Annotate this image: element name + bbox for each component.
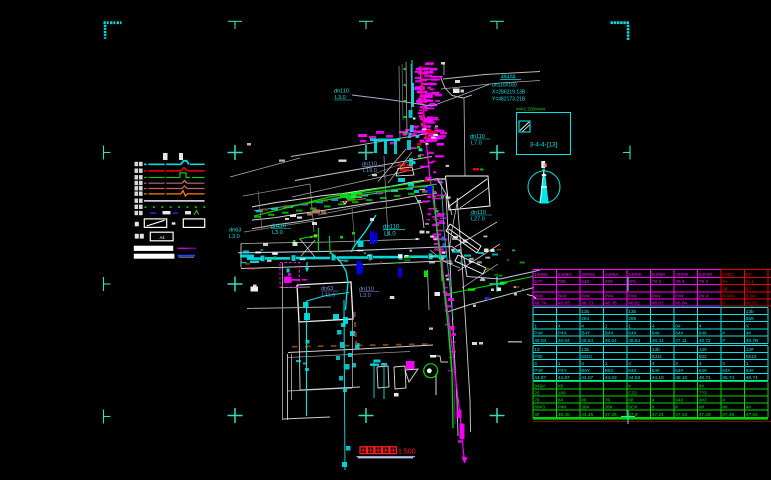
svg-text:949#: 949# xyxy=(534,384,545,390)
svg-text:4: 4 xyxy=(534,361,537,367)
svg-text:4#: 4# xyxy=(746,331,752,337)
svg-text:48: 48 xyxy=(581,398,587,404)
svg-text:4: 4 xyxy=(699,361,702,367)
svg-text:###1:200####: ###1:200#### xyxy=(516,107,546,112)
svg-text:7?3: 7?3 xyxy=(699,391,707,397)
svg-text:4: 4 xyxy=(628,361,631,367)
svg-text:3-4-4-[13]: 3-4-4-[13] xyxy=(530,142,558,149)
svg-text:E#: E# xyxy=(746,272,752,278)
svg-text:4#: 4# xyxy=(534,412,540,418)
svg-text:4: 4 xyxy=(652,361,655,367)
svg-text:64X: 64X xyxy=(628,331,637,337)
svg-text:L4.0: L4.0 xyxy=(384,232,396,238)
svg-text:479: 479 xyxy=(605,279,613,285)
svg-text:13b: 13b xyxy=(628,309,636,315)
svg-text:13#: 13# xyxy=(746,347,754,353)
svg-text:8-9#: 8-9# xyxy=(746,294,756,300)
svg-text:54#8#: 54#8# xyxy=(628,272,642,278)
svg-text:B4Y: B4Y xyxy=(581,331,591,337)
svg-text:47.25: 47.25 xyxy=(605,412,617,418)
svg-text:13: 13 xyxy=(534,347,540,353)
svg-text:44.87: 44.87 xyxy=(558,375,570,381)
svg-text:542: 542 xyxy=(581,279,589,285)
svg-text:64#: 64# xyxy=(652,331,660,337)
svg-text:6#: 6# xyxy=(675,324,681,330)
svg-text:47.11: 47.11 xyxy=(675,338,687,344)
svg-text:48.72: 48.72 xyxy=(699,338,711,344)
svg-text:4#1: 4#1 xyxy=(628,279,636,285)
svg-text:P#4: P#4 xyxy=(605,294,614,300)
svg-text:832: 832 xyxy=(699,354,707,360)
svg-text:1: 1 xyxy=(558,361,561,367)
svg-text:4#: 4# xyxy=(746,405,752,411)
svg-text:P4Y: P4Y xyxy=(558,368,568,374)
svg-text:47.63: 47.63 xyxy=(746,412,758,418)
svg-text:25: 25 xyxy=(534,391,540,397)
svg-text:L19.0: L19.0 xyxy=(363,168,377,174)
svg-text:48.41: 48.41 xyxy=(652,338,664,344)
svg-text:84X: 84X xyxy=(628,368,637,374)
svg-text:48.81: 48.81 xyxy=(628,301,640,307)
svg-text:48.04: 48.04 xyxy=(534,338,546,344)
svg-text:4#: 4# xyxy=(722,405,728,411)
svg-text:5310: 5310 xyxy=(581,354,592,360)
svg-text:48.45: 48.45 xyxy=(558,412,570,418)
svg-text:47.45: 47.45 xyxy=(722,412,734,418)
svg-text:##: ## xyxy=(699,405,705,411)
svg-text:4: 4 xyxy=(652,398,655,404)
svg-text:44.45: 44.45 xyxy=(581,412,593,418)
svg-text:64#: 64# xyxy=(652,368,660,374)
svg-text:#: # xyxy=(722,338,725,344)
svg-text:P4#: P4# xyxy=(558,405,567,411)
svg-text:47.34: 47.34 xyxy=(675,412,687,418)
svg-text:44.63: 44.63 xyxy=(605,375,617,381)
svg-text:C22: C22 xyxy=(628,391,637,397)
svg-text:44.10: 44.10 xyxy=(652,375,664,381)
svg-text:47.29: 47.29 xyxy=(699,412,711,418)
svg-text:44.63: 44.63 xyxy=(628,375,640,381)
svg-text:dn110: dn110 xyxy=(334,89,349,95)
svg-text:B#4: B#4 xyxy=(534,294,543,300)
svg-text:P# 4: P# 4 xyxy=(699,294,709,300)
svg-text:48.10: 48.10 xyxy=(675,375,687,381)
svg-text:4: 4 xyxy=(722,398,725,404)
svg-text:Y=482173.21B: Y=482173.21B xyxy=(492,97,526,103)
svg-text:L3.0: L3.0 xyxy=(272,230,283,236)
svg-text:B6X: B6X xyxy=(605,368,615,374)
svg-text:P#4: P#4 xyxy=(675,294,684,300)
svg-text:48.82: 48.82 xyxy=(652,301,664,307)
svg-text:36#: 36# xyxy=(605,405,613,411)
svg-text:940: 940 xyxy=(675,398,683,404)
svg-text:4: 4 xyxy=(581,324,584,330)
svg-text:48.7B: 48.7B xyxy=(746,338,759,344)
svg-text:577: 577 xyxy=(534,279,542,285)
svg-text:84: 84 xyxy=(558,398,564,404)
svg-text:48.84: 48.84 xyxy=(581,338,593,344)
svg-text:48.71: 48.71 xyxy=(699,375,711,381)
svg-text:4: 4 xyxy=(581,361,584,367)
svg-text:48.74: 48.74 xyxy=(746,375,758,381)
svg-text:1:500: 1:500 xyxy=(398,449,416,456)
svg-text:13#: 13# xyxy=(699,347,707,353)
svg-text:L3.0: L3.0 xyxy=(360,293,371,299)
svg-text:5513: 5513 xyxy=(746,354,757,360)
svg-text:L27.0: L27.0 xyxy=(471,217,485,223)
svg-text:6C#: 6C# xyxy=(628,405,637,411)
svg-text:dn63: dn63 xyxy=(229,228,241,234)
svg-text:44.87: 44.87 xyxy=(534,375,546,381)
svg-text:78 4: 78 4 xyxy=(675,279,685,285)
svg-text:1: 1 xyxy=(628,324,631,330)
svg-text:L3.0: L3.0 xyxy=(229,234,240,240)
svg-text:4: 4 xyxy=(675,361,678,367)
svg-text:64#: 64# xyxy=(675,331,683,337)
svg-text:4: 4 xyxy=(699,324,702,330)
svg-text:78 3: 78 3 xyxy=(652,279,662,285)
svg-text:4: 4 xyxy=(558,324,561,330)
svg-text:A4: A4 xyxy=(160,235,166,240)
svg-text:785: 785 xyxy=(558,279,566,285)
svg-text:48.84: 48.84 xyxy=(675,301,687,307)
svg-text:1: 1 xyxy=(534,324,537,330)
svg-text:X=286219.13B: X=286219.13B xyxy=(492,90,526,96)
svg-text:#: # xyxy=(722,331,725,337)
svg-text:4-8#A: 4-8#A xyxy=(722,294,736,300)
svg-text:48.64: 48.64 xyxy=(628,338,640,344)
svg-text:4: 4 xyxy=(722,361,725,367)
svg-text:9#2: 9#2 xyxy=(699,398,707,404)
svg-text:45.74: 45.74 xyxy=(722,375,734,381)
svg-text:#9: #9 xyxy=(558,384,564,390)
svg-text:P#4: P#4 xyxy=(628,294,637,300)
svg-text:#: # xyxy=(675,405,678,411)
svg-text:1: 1 xyxy=(605,324,608,330)
svg-text:48.76: 48.76 xyxy=(605,301,617,307)
svg-text:24#8A: 24#8A xyxy=(558,272,573,278)
svg-text:2L1: 2L1 xyxy=(746,279,754,285)
svg-text:L7.0: L7.0 xyxy=(471,141,482,147)
svg-text:#: # xyxy=(722,301,725,307)
svg-text:B6Y: B6Y xyxy=(581,368,591,374)
svg-text:88: 88 xyxy=(628,398,634,404)
svg-text:P#4: P#4 xyxy=(652,294,661,300)
svg-text:B#4: B#4 xyxy=(558,294,567,300)
svg-text:89#3: 89#3 xyxy=(534,405,545,411)
svg-text:48.84: 48.84 xyxy=(558,338,570,344)
svg-text:8#: 8# xyxy=(699,384,705,390)
svg-text:dn110#160: dn110#160 xyxy=(492,83,517,89)
svg-text:84#4#: 84#4# xyxy=(699,272,713,278)
svg-text:13b: 13b xyxy=(746,309,754,315)
svg-text:1: 1 xyxy=(746,361,749,367)
svg-text:L11.0: L11.0 xyxy=(322,293,335,299)
svg-text:70: 70 xyxy=(534,398,540,404)
svg-text:#: # xyxy=(628,384,631,390)
svg-text:B4X: B4X xyxy=(605,331,615,337)
svg-text:74#8#: 74#8# xyxy=(675,272,689,278)
svg-text:48.62: 48.62 xyxy=(746,301,758,307)
svg-text:288: 288 xyxy=(628,316,636,322)
svg-text:P4#: P4# xyxy=(534,368,543,374)
svg-text:64#: 64# xyxy=(746,368,754,374)
svg-text:4: 4 xyxy=(652,324,655,330)
svg-text:F#8C: F#8C xyxy=(722,272,734,278)
svg-text:48.73: 48.73 xyxy=(581,301,593,307)
svg-text:48.74: 48.74 xyxy=(534,301,546,307)
svg-text:P4#: P4# xyxy=(534,331,543,337)
svg-text:1: 1 xyxy=(605,361,608,367)
svg-text:76: 76 xyxy=(605,398,611,404)
svg-text:8?: 8? xyxy=(746,287,752,293)
svg-text:14#8A: 14#8A xyxy=(534,272,549,278)
svg-text:13b: 13b xyxy=(581,309,589,315)
svg-text:64#: 64# xyxy=(699,368,707,374)
svg-text:100: 100 xyxy=(558,391,566,397)
svg-text:P32: P32 xyxy=(534,354,543,360)
svg-text:5311: 5311 xyxy=(652,354,663,360)
svg-text:48.83: 48.83 xyxy=(558,301,570,307)
svg-text:64#8#: 64#8# xyxy=(652,272,666,278)
svg-text:8+: 8+ xyxy=(722,279,728,285)
svg-text:36#: 36# xyxy=(581,405,589,411)
svg-text:78 4: 78 4 xyxy=(699,279,709,285)
svg-text:#: # xyxy=(652,405,655,411)
svg-text:64#: 64# xyxy=(699,331,707,337)
svg-text:13b: 13b xyxy=(652,347,660,353)
svg-text:48.64: 48.64 xyxy=(605,338,617,344)
svg-text:64#: 64# xyxy=(675,368,683,374)
svg-text:64#: 64# xyxy=(722,368,730,374)
svg-text:36: 36 xyxy=(722,287,728,293)
svg-text:44#8A: 44#8A xyxy=(605,272,620,278)
svg-text:556: 556 xyxy=(746,316,754,322)
svg-text:13b: 13b xyxy=(581,347,589,353)
svg-text:47.24: 47.24 xyxy=(652,412,664,418)
svg-text:44.07: 44.07 xyxy=(581,375,593,381)
svg-text:34#8A: 34#8A xyxy=(581,272,596,278)
svg-text:47.9: 47.9 xyxy=(628,412,638,418)
svg-text:P4X: P4X xyxy=(558,331,568,337)
svg-text:284: 284 xyxy=(581,316,589,322)
svg-text:P#4: P#4 xyxy=(581,294,590,300)
